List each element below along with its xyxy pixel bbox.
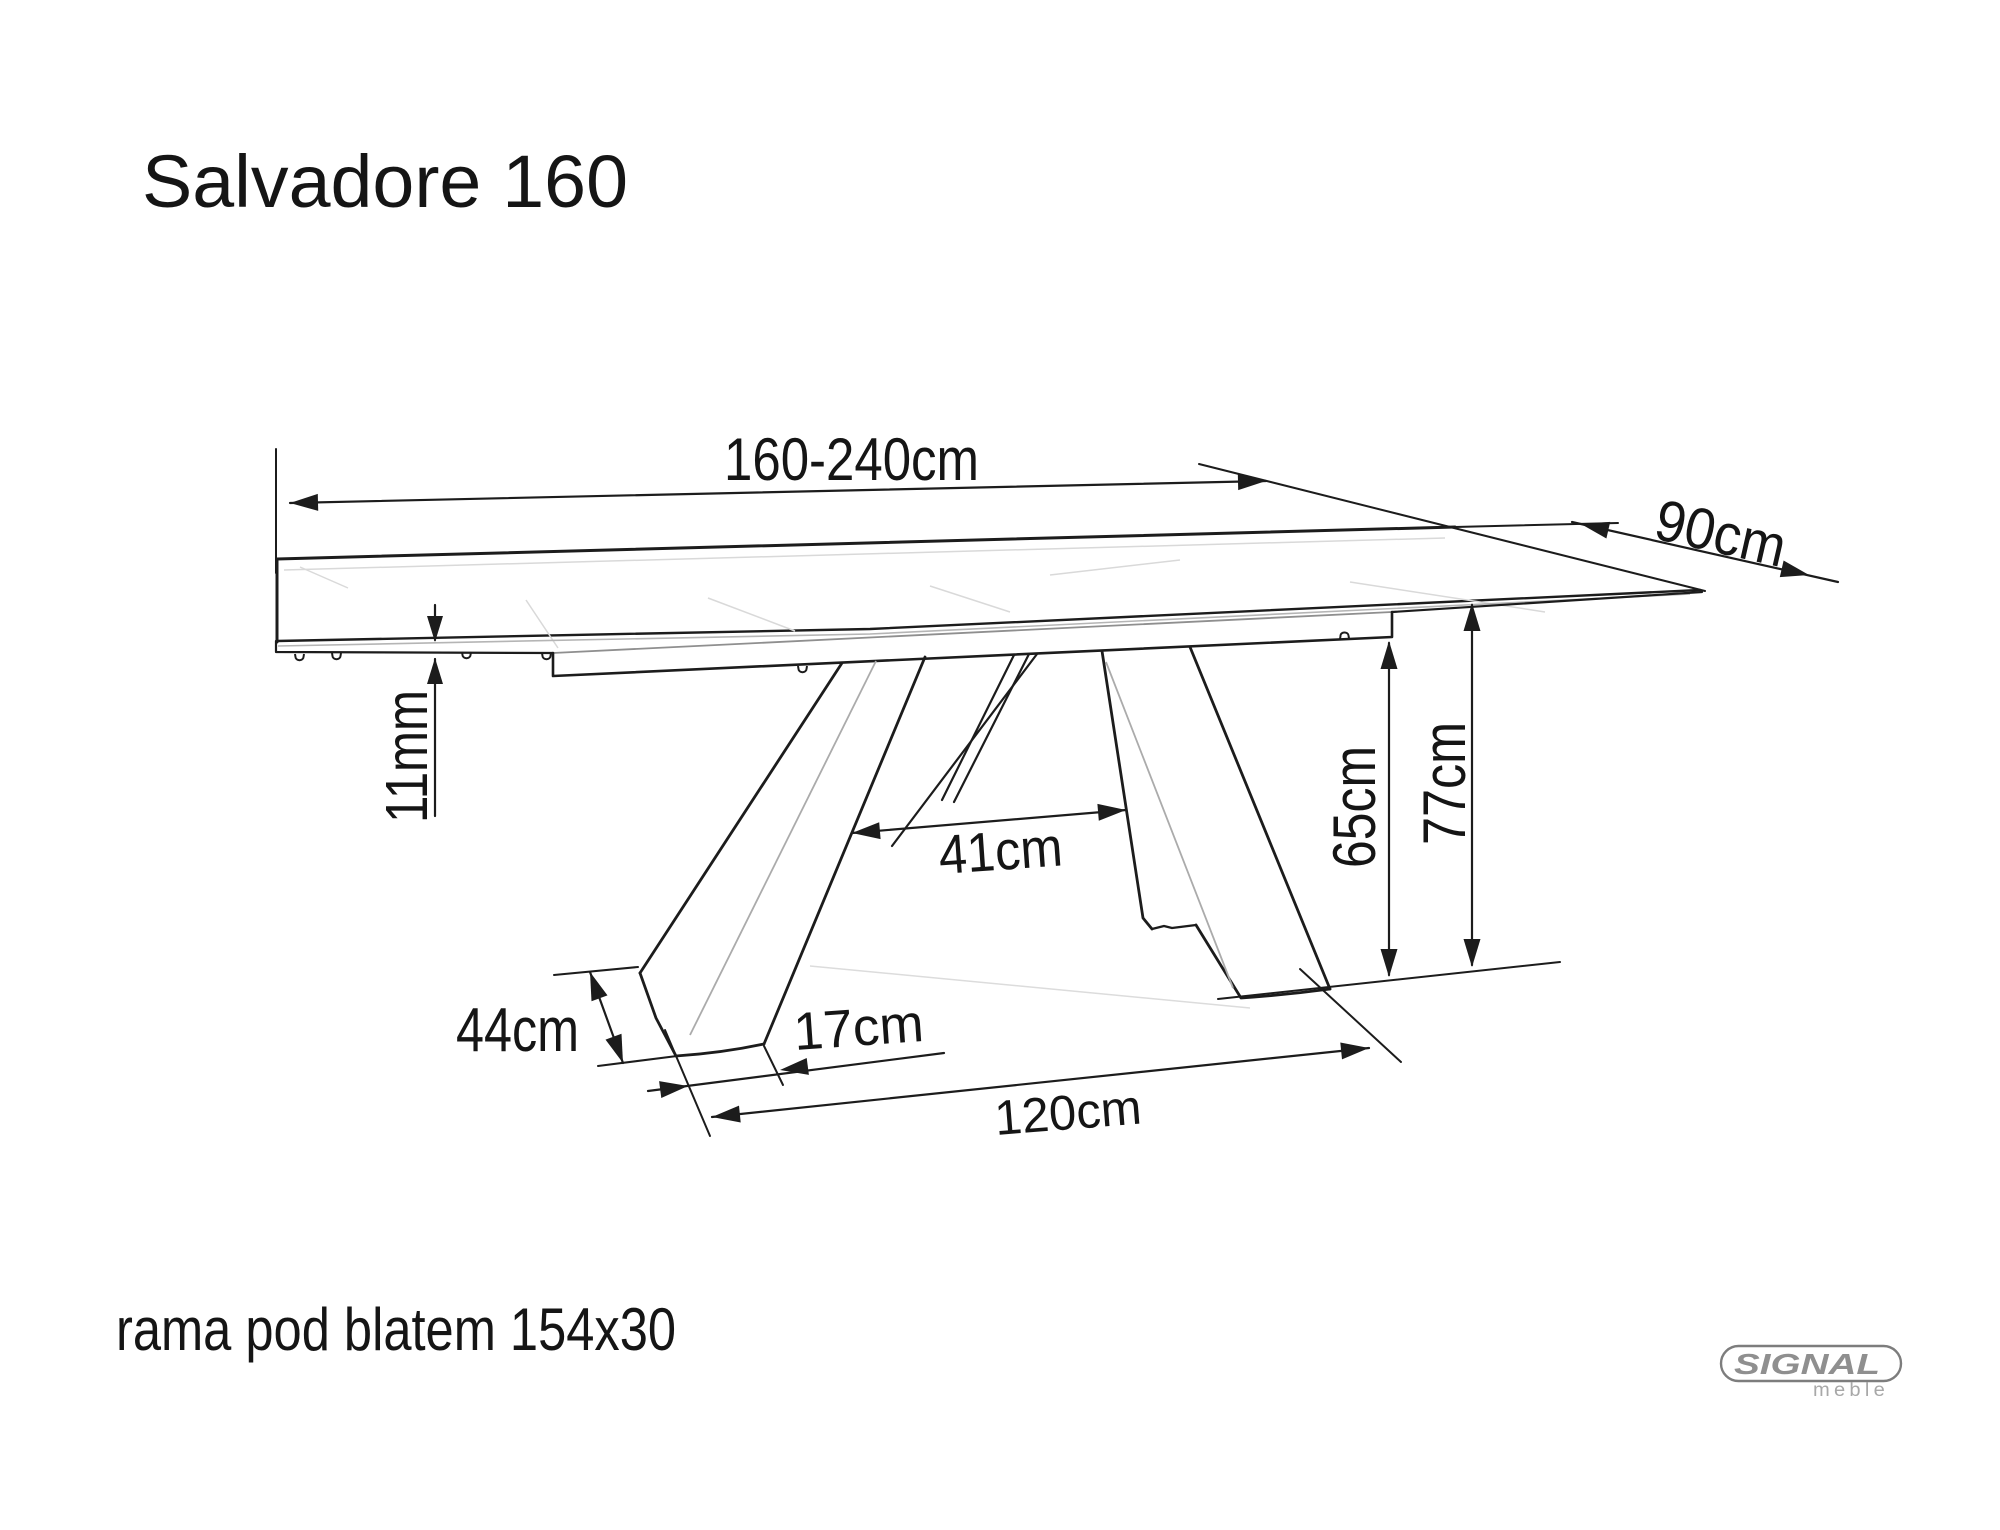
- svg-text:90cm: 90cm: [1649, 487, 1792, 580]
- svg-text:44cm: 44cm: [456, 996, 579, 1065]
- svg-text:65cm: 65cm: [1321, 746, 1388, 868]
- svg-text:11mm: 11mm: [374, 690, 440, 823]
- svg-text:SIGNAL: SIGNAL: [1734, 1349, 1880, 1381]
- svg-text:41cm: 41cm: [937, 815, 1065, 885]
- svg-text:77cm: 77cm: [1411, 722, 1478, 845]
- svg-text:Salvadore 160: Salvadore 160: [142, 140, 628, 223]
- svg-text:160-240cm: 160-240cm: [724, 426, 979, 493]
- svg-text:meble: meble: [1813, 1380, 1889, 1401]
- svg-text:120cm: 120cm: [993, 1081, 1144, 1146]
- svg-text:rama pod blatem 154x30: rama pod blatem 154x30: [116, 1296, 676, 1363]
- svg-text:17cm: 17cm: [792, 994, 926, 1062]
